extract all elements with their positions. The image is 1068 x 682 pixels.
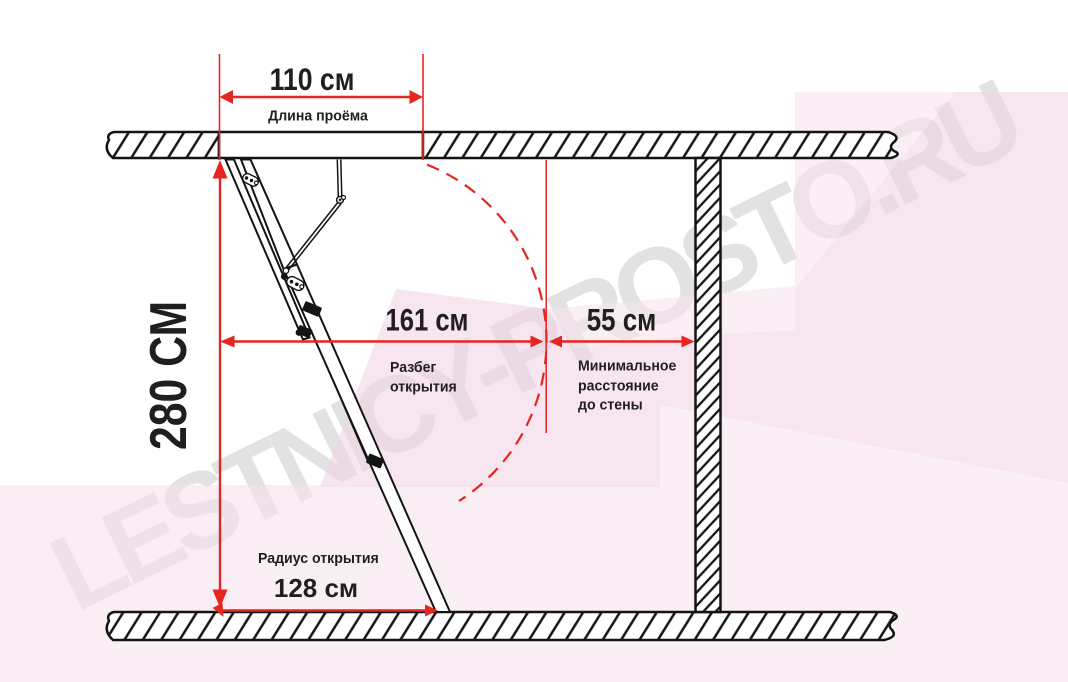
svg-text:открытия: открытия [390,379,457,396]
svg-text:110 см: 110 см [270,63,355,98]
svg-text:Минимальное: Минимальное [578,358,676,375]
svg-text:Длина проёма: Длина проёма [268,108,369,125]
svg-text:Разбег: Разбег [390,360,436,377]
svg-text:расстояние: расстояние [578,378,659,395]
svg-text:280 СМ: 280 СМ [140,301,198,450]
svg-text:161 см: 161 см [386,303,469,338]
svg-text:55 см: 55 см [587,303,657,338]
svg-text:Радиус открытия: Радиус открытия [258,551,379,568]
svg-text:до стены: до стены [578,397,643,414]
svg-text:128 см: 128 см [274,573,358,603]
